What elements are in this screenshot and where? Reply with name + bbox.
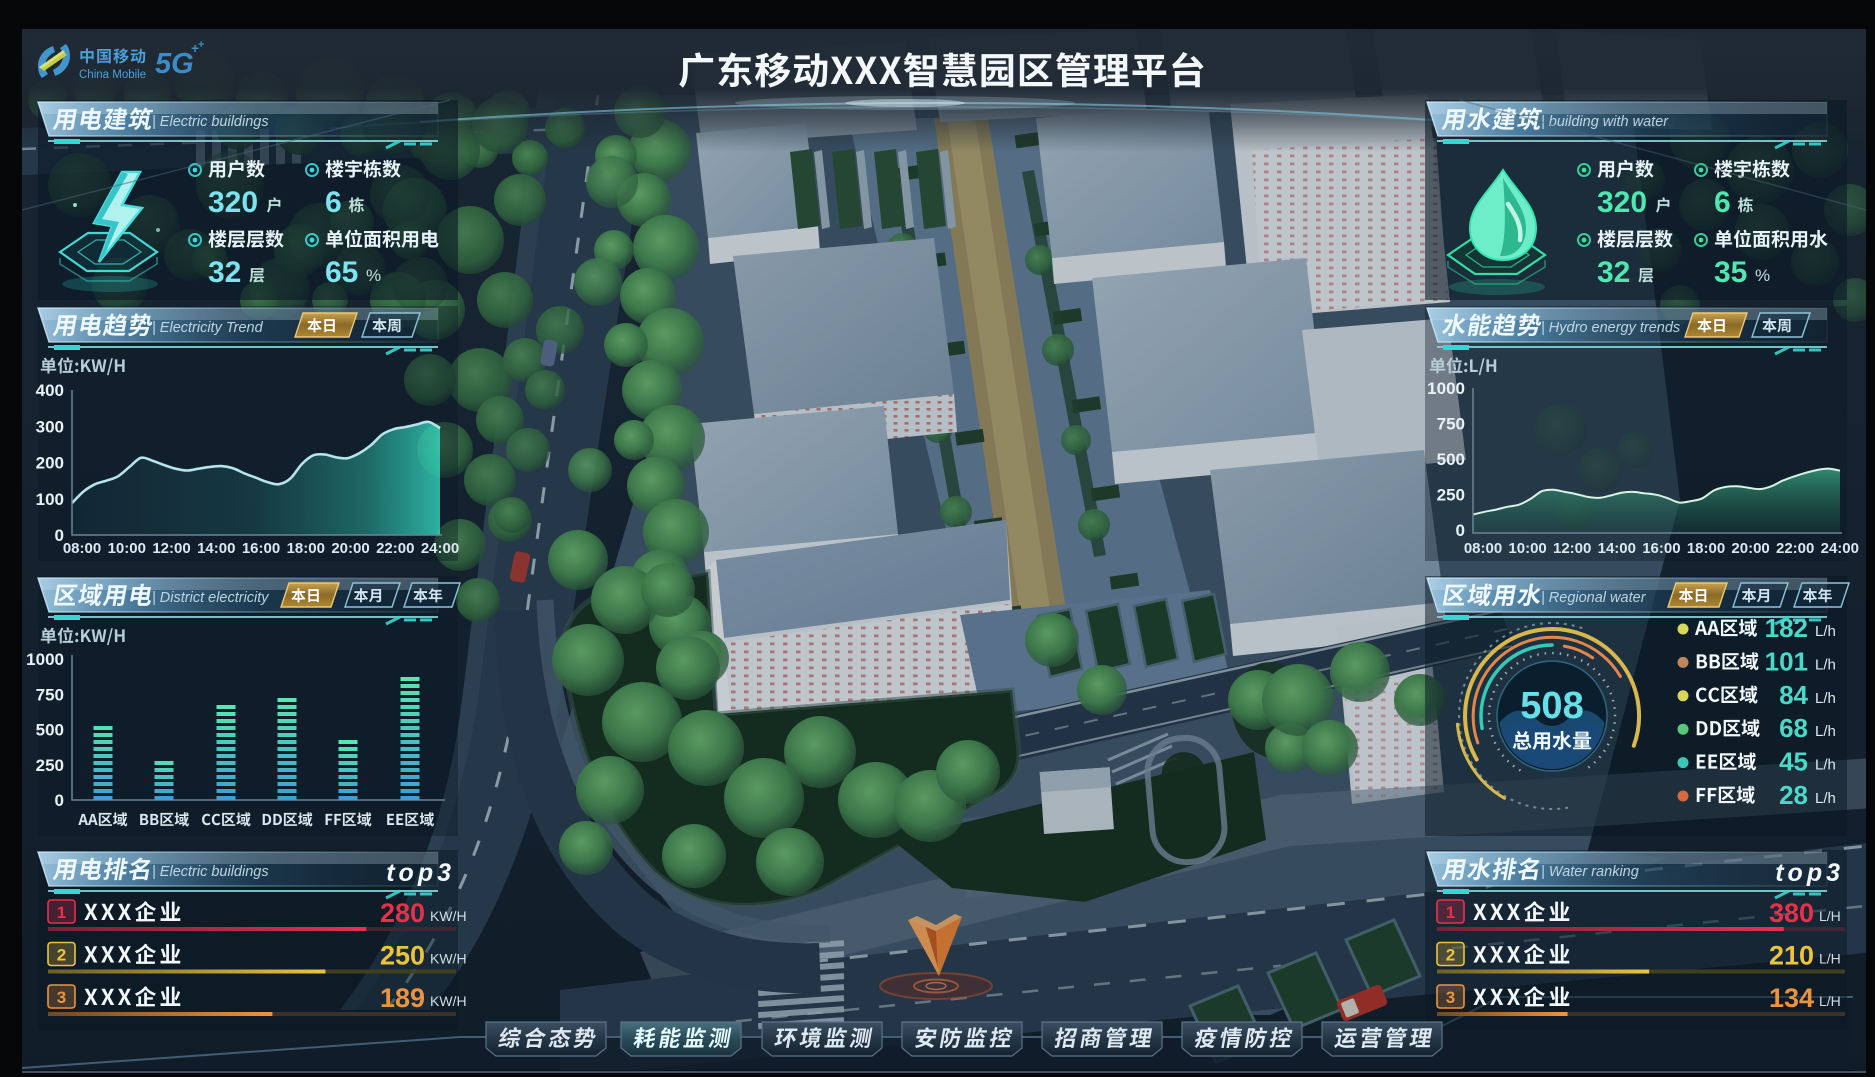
svg-text:+: + — [198, 39, 204, 51]
svg-text:134: 134 — [1769, 983, 1814, 1013]
svg-text:300: 300 — [36, 417, 64, 436]
svg-text:3: 3 — [57, 988, 66, 1007]
svg-text:5G: 5G — [155, 48, 194, 80]
svg-text:| Regional water: | Regional water — [1541, 590, 1647, 606]
svg-text:16:00: 16:00 — [1642, 540, 1680, 557]
svg-text:210: 210 — [1769, 941, 1814, 971]
svg-text:| Electric buildings: | Electric buildings — [152, 114, 269, 130]
svg-text:84: 84 — [1779, 680, 1808, 710]
svg-text:L/h: L/h — [1815, 690, 1836, 707]
svg-text:12:00: 12:00 — [1553, 540, 1591, 557]
svg-text:18:00: 18:00 — [1687, 540, 1725, 557]
svg-text:L/H: L/H — [1819, 993, 1841, 1009]
svg-text:250: 250 — [36, 756, 64, 775]
svg-text:400: 400 — [36, 381, 64, 400]
svg-text:2: 2 — [57, 946, 66, 965]
svg-text:top3: top3 — [1775, 859, 1844, 887]
svg-text:22:00: 22:00 — [1776, 540, 1814, 557]
svg-text:750: 750 — [36, 685, 64, 704]
svg-text:08:00: 08:00 — [1464, 540, 1502, 557]
svg-text:0: 0 — [1456, 521, 1465, 540]
svg-text:250: 250 — [1437, 486, 1465, 505]
svg-text:08:00: 08:00 — [63, 540, 101, 557]
svg-text:750: 750 — [1437, 415, 1465, 434]
svg-text:18:00: 18:00 — [287, 540, 325, 557]
svg-text:12:00: 12:00 — [152, 540, 190, 557]
svg-text:6: 6 — [1714, 186, 1731, 219]
svg-text:28: 28 — [1779, 780, 1808, 810]
svg-text:10:00: 10:00 — [108, 540, 146, 557]
svg-text:L/h: L/h — [1815, 623, 1836, 640]
svg-text:1: 1 — [57, 903, 66, 922]
svg-text:250: 250 — [380, 941, 425, 971]
svg-text:6: 6 — [325, 186, 342, 219]
svg-text:| Water ranking: | Water ranking — [1541, 864, 1639, 880]
svg-text:68: 68 — [1779, 713, 1808, 743]
svg-text:100: 100 — [36, 490, 64, 509]
svg-text:KW/H: KW/H — [430, 951, 467, 967]
svg-text:14:00: 14:00 — [197, 540, 235, 557]
svg-text:182: 182 — [1765, 613, 1808, 643]
svg-text:10:00: 10:00 — [1508, 540, 1546, 557]
svg-text:2: 2 — [1446, 946, 1455, 965]
svg-text:189: 189 — [380, 983, 425, 1013]
svg-text:320: 320 — [1597, 186, 1647, 219]
svg-text:101: 101 — [1765, 646, 1808, 676]
svg-text:1000: 1000 — [26, 650, 64, 669]
svg-text:20:00: 20:00 — [331, 540, 369, 557]
svg-text:32: 32 — [208, 256, 241, 289]
svg-text:22:00: 22:00 — [376, 540, 414, 557]
svg-text:%: % — [1755, 266, 1770, 285]
svg-text:| Electric buildings: | Electric buildings — [152, 864, 269, 880]
svg-text:KW/H: KW/H — [430, 908, 467, 924]
svg-text:500: 500 — [1437, 450, 1465, 469]
svg-text:35: 35 — [1714, 256, 1747, 289]
svg-text:380: 380 — [1769, 898, 1814, 928]
svg-text:China Mobile: China Mobile — [79, 69, 146, 81]
svg-text:508: 508 — [1520, 685, 1583, 727]
svg-text:3: 3 — [1446, 988, 1455, 1007]
svg-text:L/h: L/h — [1815, 757, 1836, 774]
svg-text:20:00: 20:00 — [1731, 540, 1769, 557]
svg-text:65: 65 — [325, 256, 358, 289]
svg-text:280: 280 — [380, 898, 425, 928]
svg-text:1000: 1000 — [1427, 379, 1465, 398]
svg-text:| Hydro energy trends: | Hydro energy trends — [1541, 320, 1680, 336]
svg-text:32: 32 — [1597, 256, 1630, 289]
svg-text:0: 0 — [55, 791, 64, 810]
svg-text:14:00: 14:00 — [1598, 540, 1636, 557]
svg-text:top3: top3 — [386, 859, 455, 887]
svg-text:45: 45 — [1779, 747, 1808, 777]
svg-text:16:00: 16:00 — [242, 540, 280, 557]
svg-text:24:00: 24:00 — [421, 540, 459, 557]
svg-text:%: % — [366, 266, 381, 285]
svg-text:200: 200 — [36, 454, 64, 473]
svg-text:L/h: L/h — [1815, 723, 1836, 740]
svg-text:320: 320 — [208, 186, 258, 219]
svg-text:24:00: 24:00 — [1821, 540, 1859, 557]
svg-text:L/H: L/H — [1819, 908, 1841, 924]
svg-text:1: 1 — [1446, 903, 1455, 922]
svg-text:500: 500 — [36, 721, 64, 740]
svg-text:L/H: L/H — [1819, 951, 1841, 967]
svg-text:KW/H: KW/H — [430, 993, 467, 1009]
svg-text:L/h: L/h — [1815, 656, 1836, 673]
svg-text:| District electricity: | District electricity — [152, 590, 269, 606]
svg-text:L/h: L/h — [1815, 790, 1836, 807]
svg-text:| Electricity Trend: | Electricity Trend — [152, 320, 264, 336]
